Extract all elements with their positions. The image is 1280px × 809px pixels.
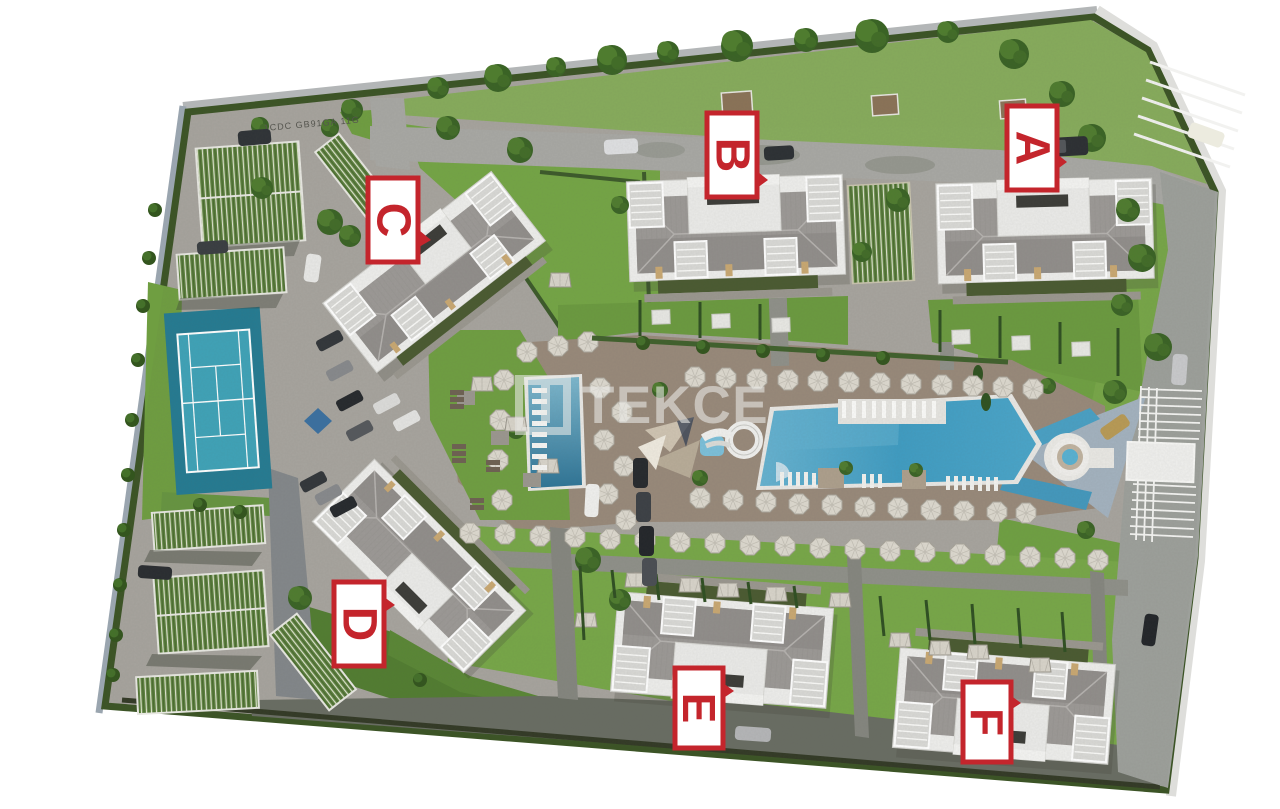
svg-text:D: D <box>333 607 386 642</box>
svg-text:C: C <box>367 203 420 238</box>
svg-text:E: E <box>673 693 725 724</box>
svg-text:A: A <box>1006 131 1059 166</box>
svg-text:TEKCE: TEKCE <box>582 376 769 435</box>
svg-text:F: F <box>961 708 1013 736</box>
svg-text:B: B <box>706 138 759 173</box>
